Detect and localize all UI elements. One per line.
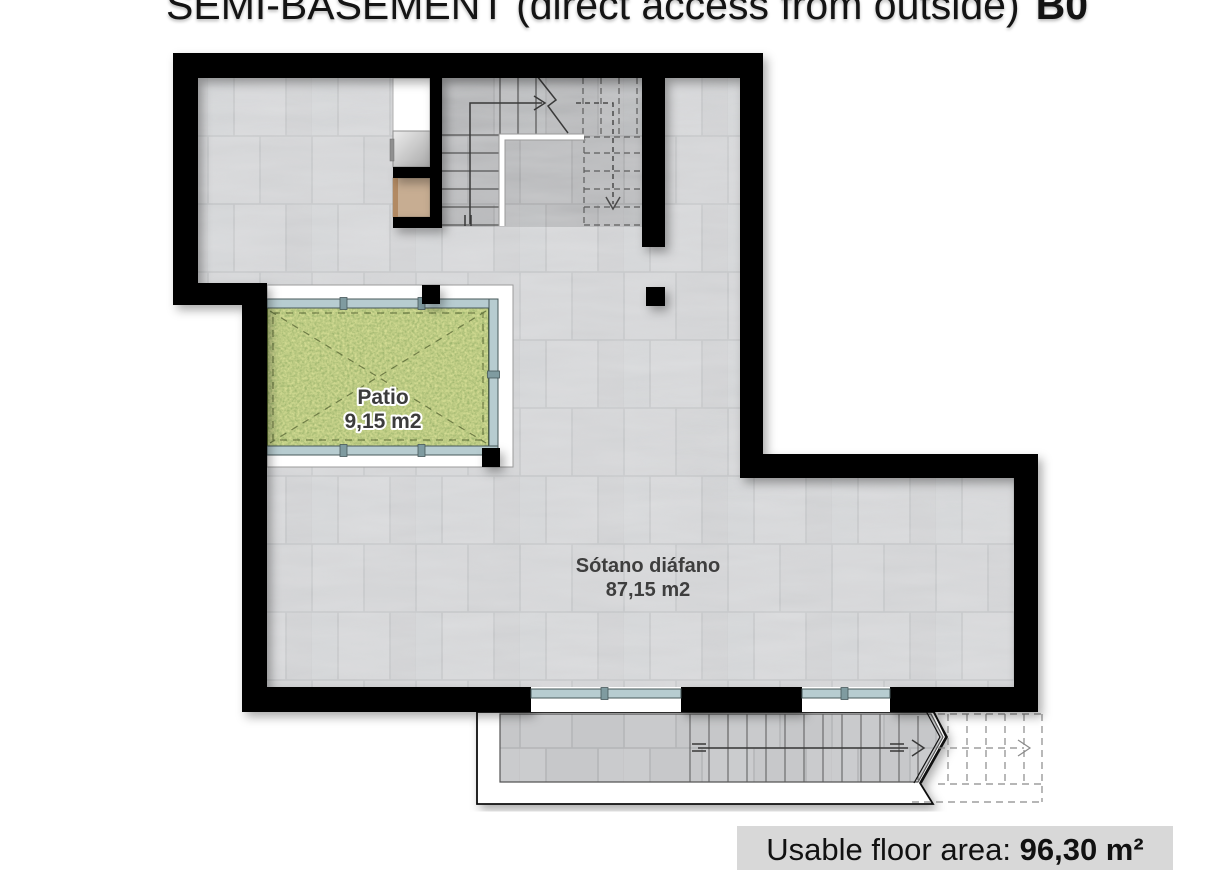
usable-area-value: 96,30 m² [1020,832,1144,867]
patio-area [267,285,513,467]
column-pillar [646,287,665,306]
wall-stair-right [642,78,665,247]
utility-niche [390,78,430,217]
screenshot-stage: SEMI-BASEMENT (direct access from outsid… [0,0,1220,870]
wall-top [173,53,763,78]
exterior-staircase [477,711,1042,804]
basement-label: Sótano diáfano [576,555,720,577]
appliance-unit [393,131,430,167]
cabinet-unit [393,178,430,217]
closet-niche [393,78,430,131]
wall-left-lower [242,283,267,712]
window-2 [802,687,890,712]
wall-bottom-1 [242,687,531,712]
usable-area-label: Usable floor area: [766,832,1019,867]
wall-right-upper [740,53,763,478]
floor-plan: Patio 9,15 m2 Sótano diáfano 87,15 m2 [0,0,1220,870]
wall-extension-right [1014,454,1038,712]
wall-stair-divider [430,78,442,228]
basement-area-label: 87,15 m2 [606,579,691,601]
patio-pillar-bottom [482,448,500,467]
patio-area-label: 9,15 m2 [344,410,421,433]
patio-pillar-top [422,285,440,304]
wall-bottom-2 [681,687,802,712]
wall-left-upper [173,53,198,305]
usable-area-box: Usable floor area: 96,30 m² [737,826,1173,870]
wall-extension-top [740,454,1038,478]
patio-label: Patio [357,386,408,409]
window-1 [531,687,681,712]
